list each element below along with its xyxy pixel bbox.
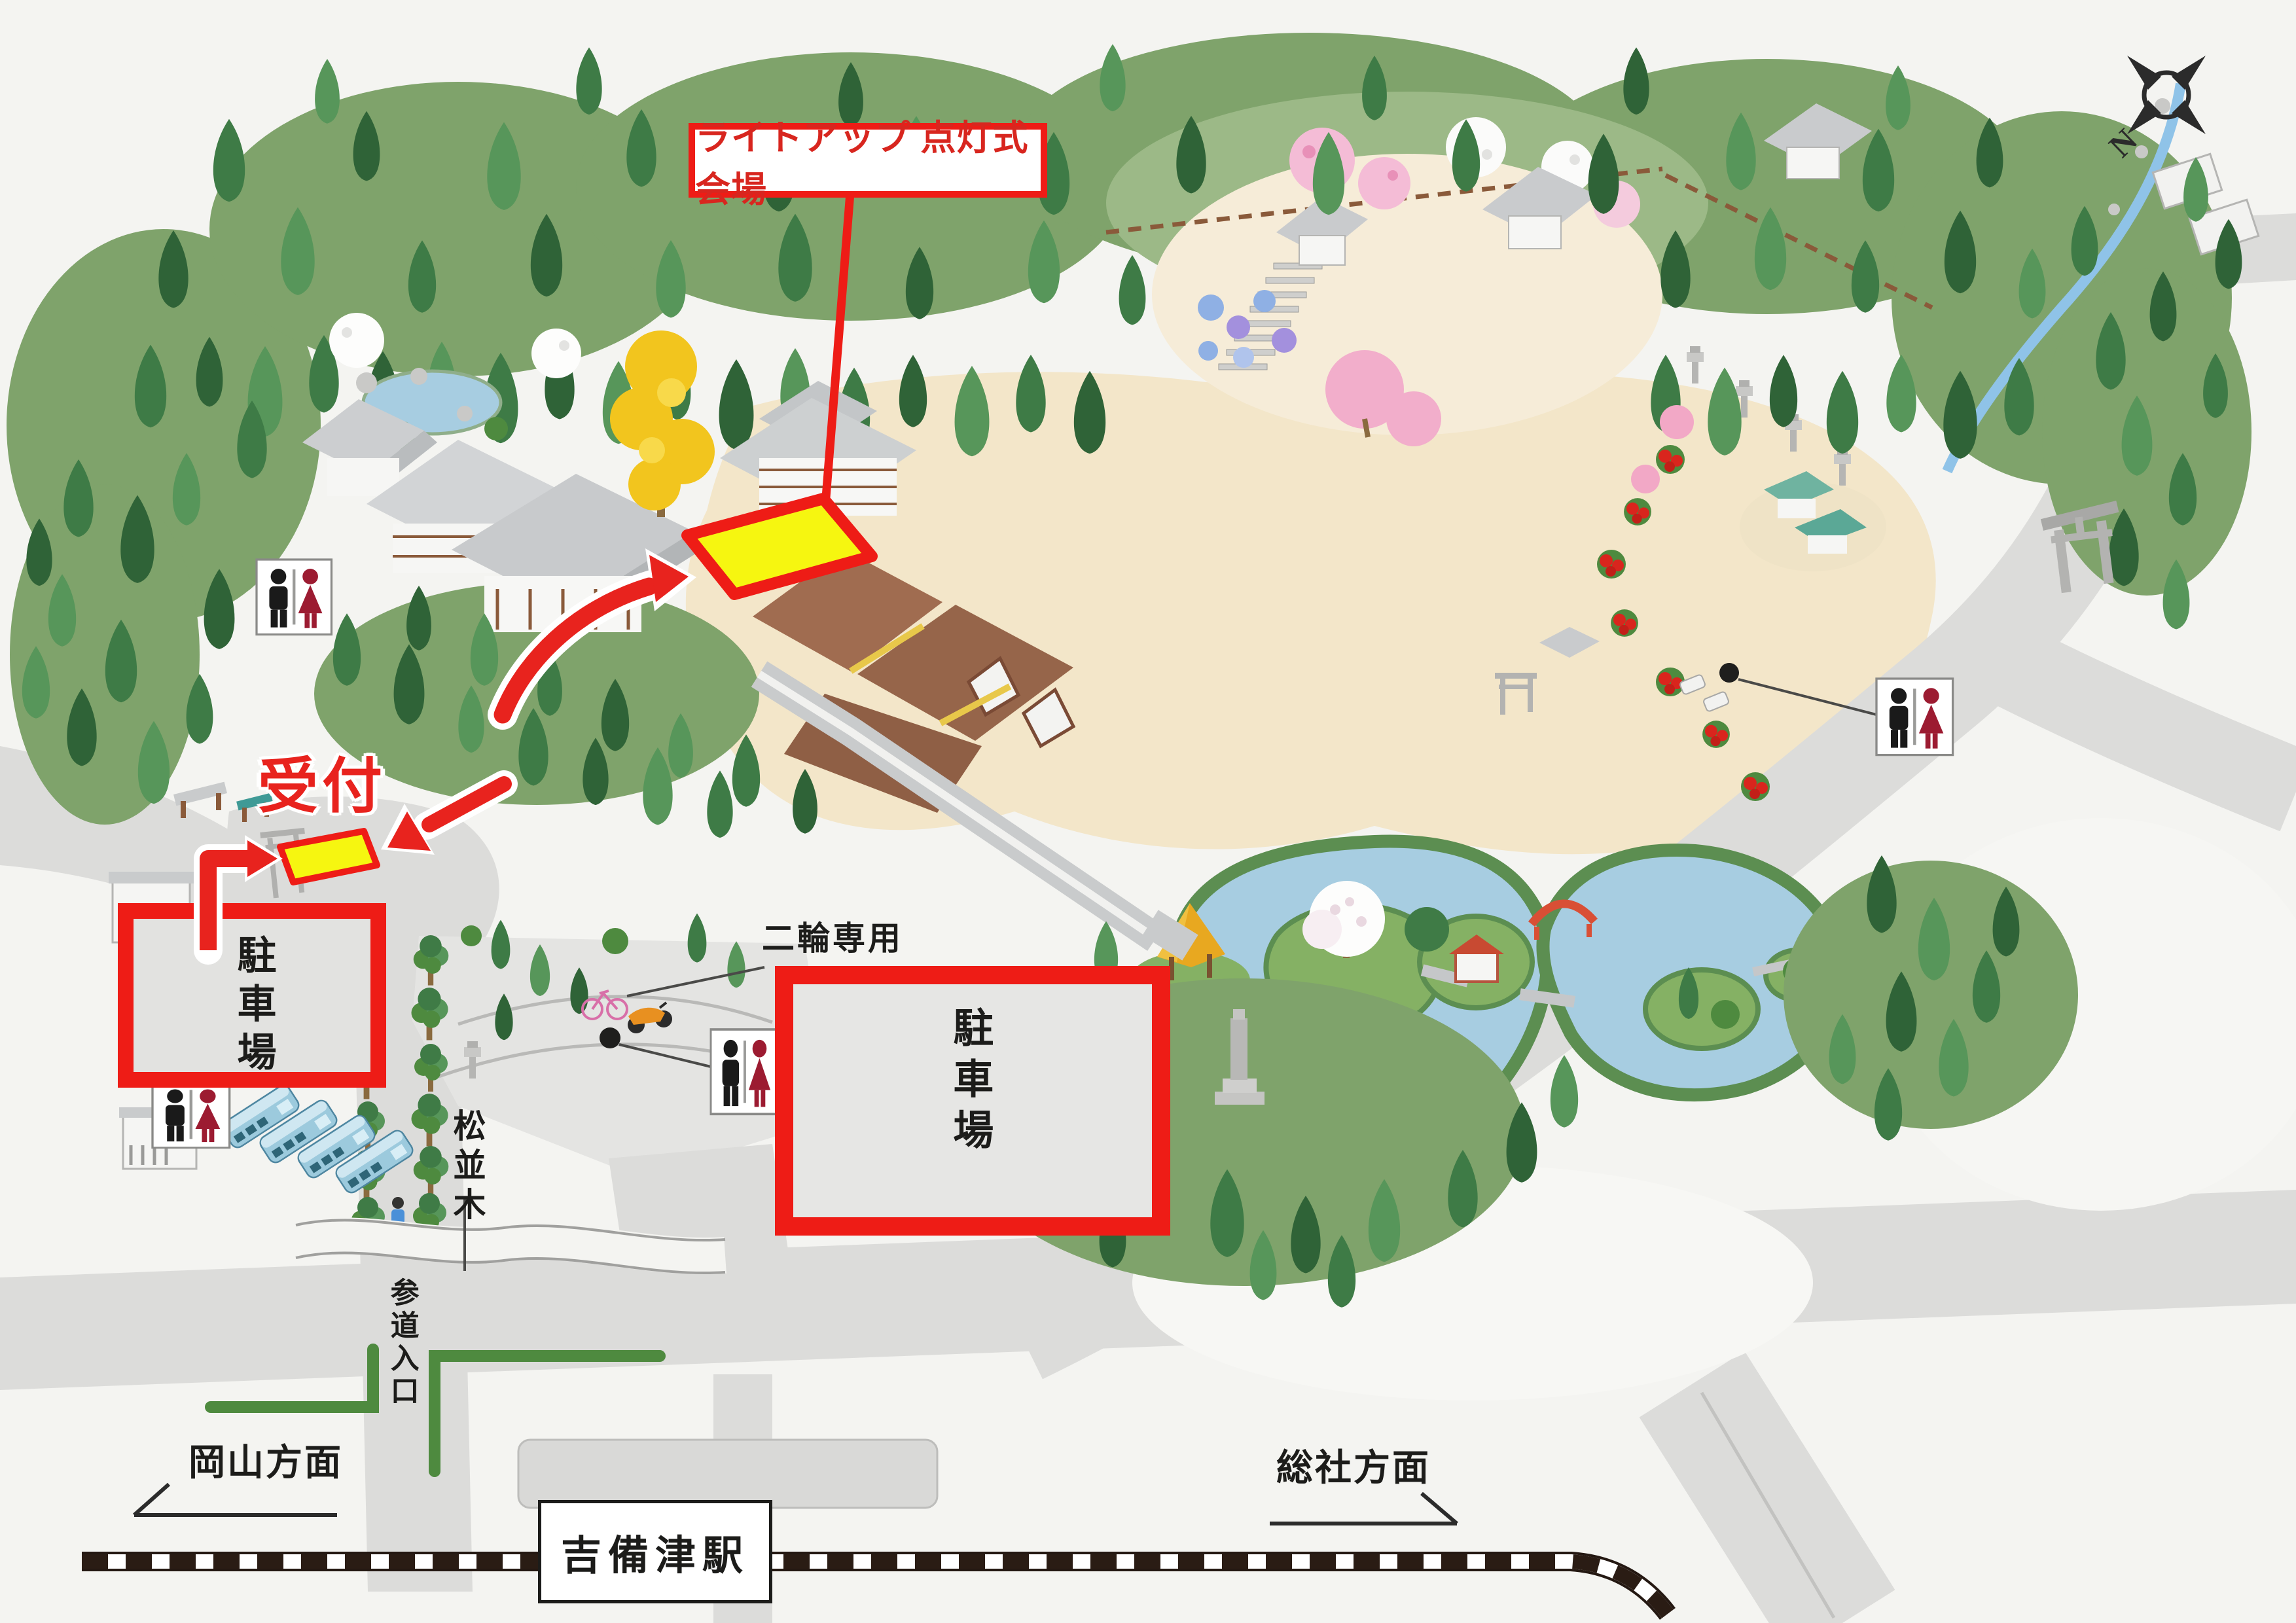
- island-shrine: [1456, 953, 1498, 982]
- left-parking-label: 駐車場: [230, 935, 276, 1080]
- venue-label-box: ライトアップ 点灯式会場: [689, 123, 1047, 198]
- okayama-direction-label: 岡山方面: [188, 1442, 343, 1484]
- right-parking-label: 駐車場: [945, 1007, 992, 1160]
- two-wheel-label: 二輪専用: [762, 920, 903, 958]
- toilet-location-dot: [1719, 663, 1739, 683]
- toilet-icon-mid-parking: [711, 1029, 779, 1114]
- bike-parking-dot: [600, 1027, 620, 1048]
- reception-label: 受付: [258, 753, 386, 822]
- shrine-illustrated-map: ライトアップ 点灯式会場 受付 駐車場 駐車場 二輪専用 松並木 参道入口 岡山…: [0, 0, 2296, 1623]
- station-label: 吉備津駅: [561, 1522, 749, 1581]
- toilet-icon-bus-parking: [152, 1081, 230, 1148]
- soja-direction-label: 総社方面: [1276, 1448, 1431, 1489]
- toilet-icon-east: [1876, 679, 1953, 755]
- approach-entrance-label: 参道入口: [385, 1277, 418, 1408]
- venue-label: ライトアップ 点灯式会場: [695, 109, 1041, 212]
- pine-row-label: 松並木: [448, 1109, 486, 1226]
- toilet-icon-northwest: [257, 560, 331, 634]
- station-label-box: 吉備津駅: [538, 1500, 772, 1603]
- station-platform: [518, 1440, 937, 1508]
